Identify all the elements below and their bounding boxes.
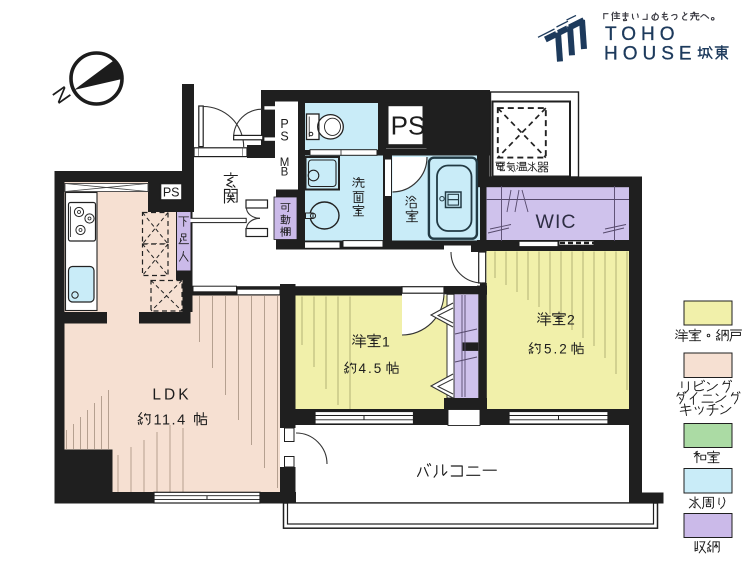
svg-text:PS: PS (391, 111, 426, 141)
svg-text:5.2: 5.2 (544, 342, 569, 357)
svg-text:1: 1 (382, 334, 390, 350)
svg-text:11.4: 11.4 (154, 413, 187, 429)
svg-text:4.5: 4.5 (359, 361, 384, 376)
svg-text:TOHO: TOHO (605, 24, 680, 45)
svg-text:LDK: LDK (152, 387, 191, 404)
svg-text:B: B (281, 167, 289, 179)
svg-text:PS: PS (163, 186, 180, 200)
svg-text:2: 2 (567, 312, 575, 328)
svg-text:S: S (280, 130, 288, 144)
svg-text:HOUSE: HOUSE (604, 44, 697, 65)
svg-text:WIC: WIC (536, 211, 577, 233)
